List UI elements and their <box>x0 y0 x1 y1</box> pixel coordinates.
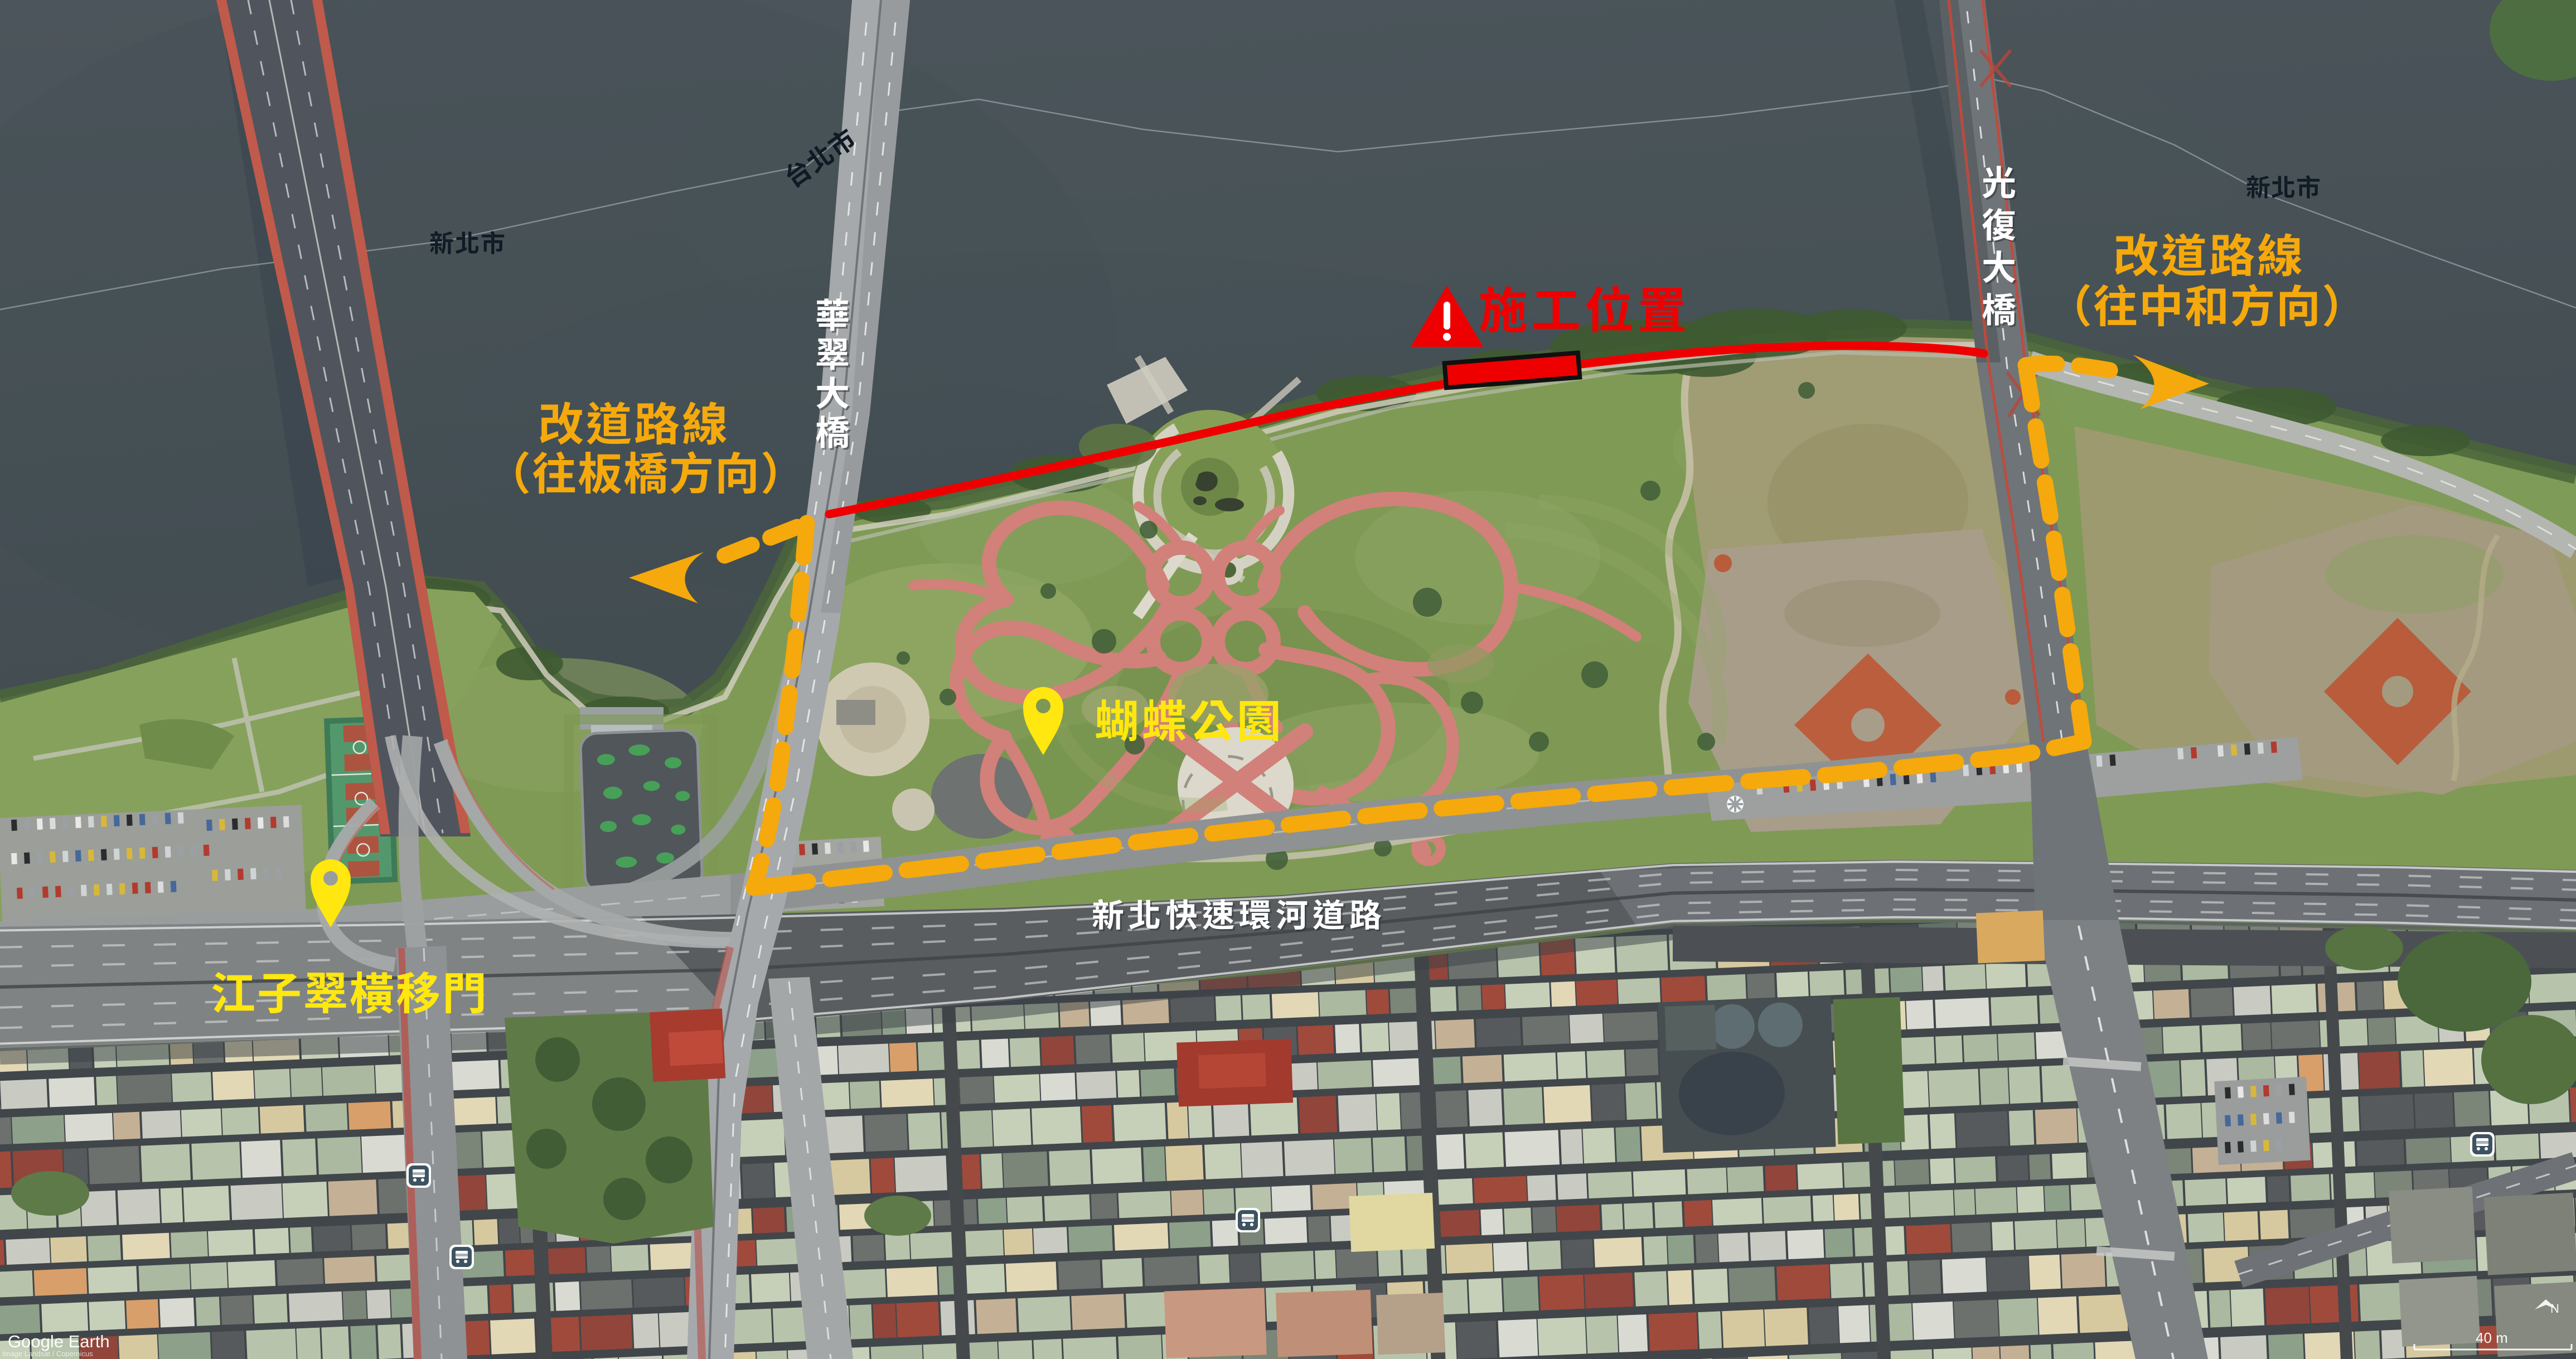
svg-text:N: N <box>2550 1302 2559 1316</box>
svg-text:Image Landsat / Copernicus: Image Landsat / Copernicus <box>2 1350 93 1358</box>
svg-text:Google Earth: Google Earth <box>8 1332 110 1351</box>
svg-text:40 m: 40 m <box>2476 1329 2508 1346</box>
